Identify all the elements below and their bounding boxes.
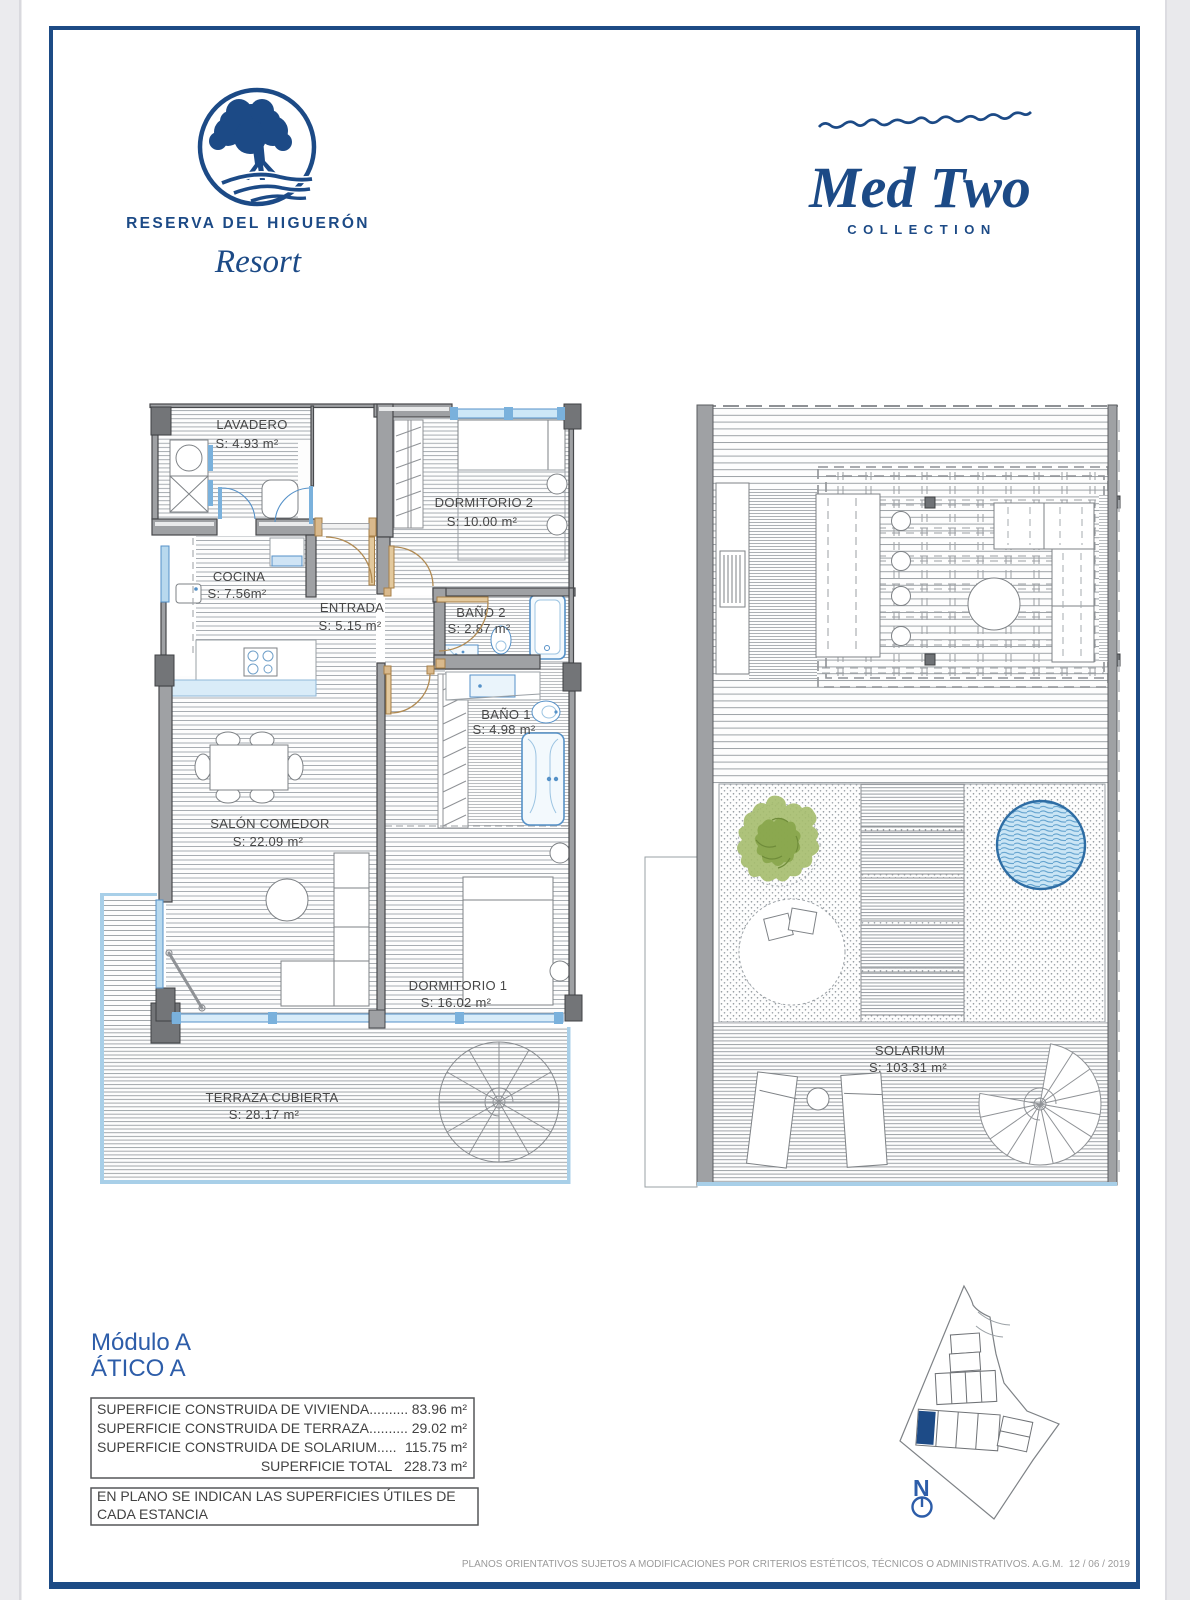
svg-text:EN PLANO SE INDICAN LAS SUPERF: EN PLANO SE INDICAN LAS SUPERFICIES ÚTIL… (97, 1488, 456, 1504)
svg-text:COLLECTION: COLLECTION (847, 222, 997, 237)
svg-text:S: 22.09 m²: S: 22.09 m² (233, 834, 304, 849)
svg-text:115.75 m²: 115.75 m² (405, 1439, 467, 1455)
svg-text:COCINA: COCINA (213, 569, 265, 584)
svg-text:CADA ESTANCIA: CADA ESTANCIA (97, 1506, 209, 1522)
svg-text:SUPERFICIE CONSTRUIDA DE VIVIE: SUPERFICIE CONSTRUIDA DE VIVIENDA.......… (97, 1401, 408, 1417)
svg-text:BAÑO 2: BAÑO 2 (456, 605, 505, 620)
svg-text:SOLARIUM: SOLARIUM (875, 1043, 945, 1058)
svg-text:DORMITORIO 2: DORMITORIO 2 (435, 495, 534, 510)
svg-text:SUPERFICIE CONSTRUIDA DE TERRA: SUPERFICIE CONSTRUIDA DE TERRAZA........… (97, 1420, 408, 1436)
svg-text:TERRAZA CUBIERTA: TERRAZA CUBIERTA (206, 1090, 339, 1105)
svg-text:Med Two: Med Two (808, 155, 1031, 220)
svg-text:S: 28.17 m²: S: 28.17 m² (229, 1107, 300, 1122)
svg-text:S: 7.56m²: S: 7.56m² (207, 586, 266, 601)
svg-text:S: 4.93 m²: S: 4.93 m² (216, 436, 279, 451)
svg-text:SALÓN COMEDOR: SALÓN COMEDOR (210, 816, 329, 831)
svg-text:Módulo A: Módulo A (91, 1329, 191, 1356)
svg-text:RESERVA DEL HIGUERÓN: RESERVA DEL HIGUERÓN (126, 214, 370, 232)
svg-text:29.02 m²: 29.02 m² (412, 1420, 468, 1436)
svg-text:Resort: Resort (214, 244, 302, 280)
svg-text:SUPERFICIE CONSTRUIDA DE SOLAR: SUPERFICIE CONSTRUIDA DE SOLARIUM..... (97, 1439, 397, 1455)
svg-text:S: 10.00 m²: S: 10.00 m² (447, 514, 518, 529)
svg-text:ENTRADA: ENTRADA (320, 600, 384, 615)
svg-text:S: 16.02 m²: S: 16.02 m² (421, 995, 492, 1010)
svg-text:SUPERFICIE TOTAL 228.73 m²: SUPERFICIE TOTAL 228.73 m² (261, 1458, 468, 1474)
svg-text:ÁTICO A: ÁTICO A (91, 1355, 186, 1382)
svg-text:LAVADERO: LAVADERO (216, 417, 287, 432)
svg-text:S: 2.87 m²: S: 2.87 m² (448, 621, 511, 636)
svg-text:PLANOS ORIENTATIVOS SUJETOS A: PLANOS ORIENTATIVOS SUJETOS A MODIFICACI… (462, 1557, 1131, 1570)
svg-text:S: 4.98 m²: S: 4.98 m² (473, 722, 536, 737)
svg-text:BAÑO 1: BAÑO 1 (481, 707, 530, 722)
svg-text:S: 5.15 m²: S: 5.15 m² (319, 618, 382, 633)
svg-text:83.96 m²: 83.96 m² (412, 1401, 468, 1417)
svg-text:DORMITORIO 1: DORMITORIO 1 (409, 978, 508, 993)
